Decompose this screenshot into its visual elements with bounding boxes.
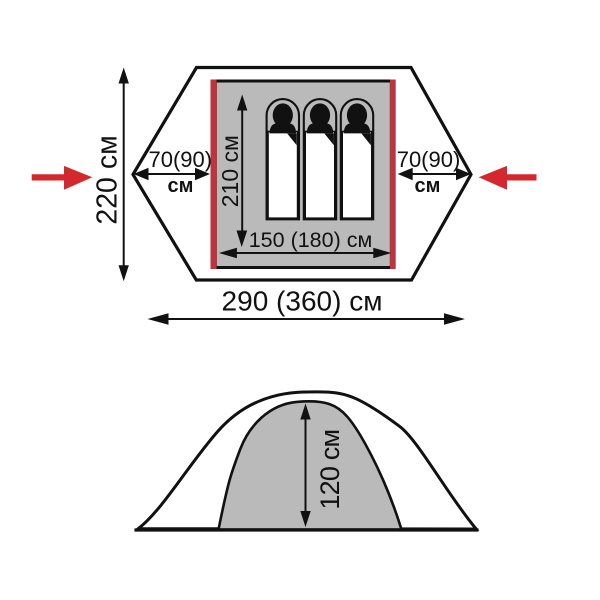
svg-text:70(90): 70(90) (149, 147, 213, 172)
svg-text:220 см: 220 см (91, 135, 123, 224)
svg-text:150 (180) см: 150 (180) см (249, 228, 373, 252)
svg-text:120 см: 120 см (315, 430, 345, 510)
svg-text:290 (360) см: 290 (360) см (222, 286, 383, 317)
svg-text:см: см (168, 175, 194, 197)
svg-text:210 см: 210 см (217, 135, 243, 207)
svg-text:см: см (415, 175, 441, 197)
svg-text:70(90): 70(90) (397, 147, 461, 172)
